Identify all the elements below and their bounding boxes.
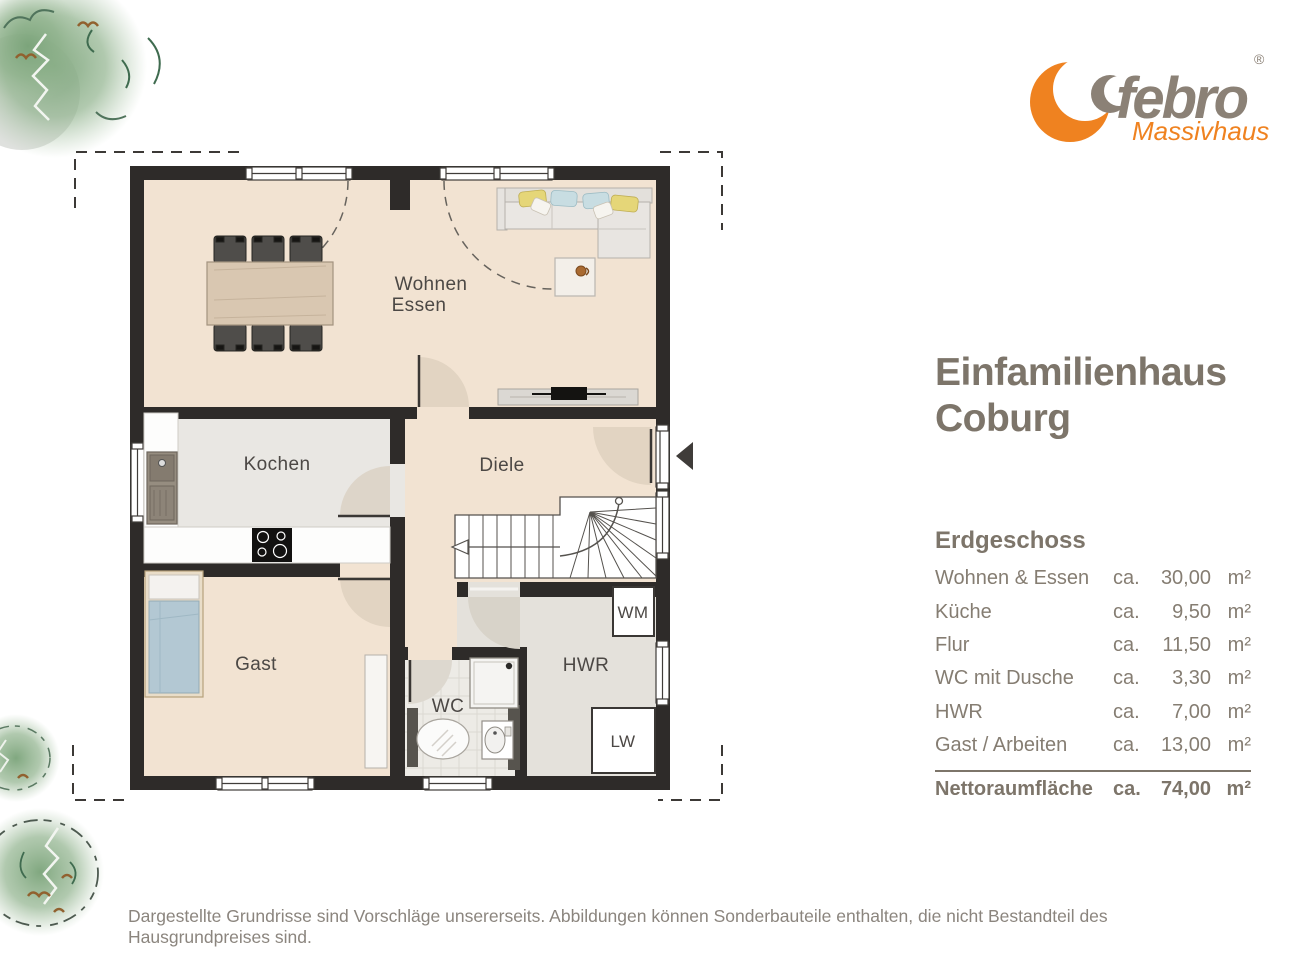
area-ca: ca. — [1113, 567, 1151, 590]
area-row: Kücheca.9,50m² — [935, 601, 1251, 634]
title-line-2: Coburg — [935, 397, 1071, 440]
label-essen: Essen — [392, 295, 447, 316]
area-label: Wohnen & Essen — [935, 567, 1113, 590]
tv-lowboard — [498, 387, 638, 405]
gast-wardrobe — [365, 655, 387, 768]
area-value: 7,00 — [1151, 701, 1211, 724]
area-label: HWR — [935, 701, 1113, 724]
area-value: 11,50 — [1151, 634, 1211, 657]
window-terrace-right — [440, 167, 554, 180]
info-panel: Einfamilienhaus Coburg Erdgeschoss Wohne… — [935, 350, 1251, 801]
wall-stub — [390, 180, 410, 210]
faucet-icon — [159, 460, 166, 467]
washbasin — [482, 721, 513, 759]
label-wm: WM — [617, 603, 648, 622]
area-unit: m² — [1211, 601, 1251, 624]
area-total-row: Nettoraumflächeca.74,00m² — [935, 770, 1251, 801]
area-unit: m² — [1211, 567, 1251, 590]
tree-top-left — [0, 0, 160, 158]
wc-partition-left — [407, 708, 418, 767]
stair-newel — [616, 498, 623, 505]
title-line-1: Einfamilienhaus — [935, 351, 1227, 394]
area-ca: ca. — [1113, 667, 1151, 690]
area-table: Wohnen & Essenca.30,00m² Kücheca.9,50m² … — [935, 567, 1251, 800]
kitchen-sink-unit — [147, 452, 177, 524]
area-unit: m² — [1211, 701, 1251, 724]
area-unit: m² — [1211, 634, 1251, 657]
area-label: Küche — [935, 601, 1113, 624]
label-gast: Gast — [235, 654, 277, 675]
bed-pillow — [149, 575, 199, 599]
area-ca: ca. — [1113, 701, 1151, 724]
window-hwr — [656, 641, 669, 705]
area-row: HWRca.7,00m² — [935, 701, 1251, 734]
diele-corridor-floor — [405, 419, 457, 647]
page: Wohnen Essen Kochen Diele Gast WC HWR WM… — [0, 0, 1296, 972]
label-diele: Diele — [479, 455, 524, 476]
window-wc — [423, 777, 492, 790]
bush-bottom-left-small — [0, 714, 60, 802]
logo-subtitle: Massivhaus — [1132, 116, 1269, 146]
area-value: 30,00 — [1151, 567, 1211, 590]
area-value: 13,00 — [1151, 734, 1211, 757]
area-ca: ca. — [1113, 601, 1151, 624]
area-value: 3,30 — [1151, 667, 1211, 690]
cup-icon — [576, 266, 586, 276]
bathtub-oval — [417, 719, 469, 759]
area-label: Flur — [935, 634, 1113, 657]
window-terrace-left — [246, 167, 352, 180]
window-gast — [216, 777, 314, 790]
side-table — [555, 258, 595, 296]
shower — [470, 658, 518, 708]
label-kochen: Kochen — [244, 454, 311, 475]
area-label: WC mit Dusche — [935, 667, 1113, 690]
area-ca: ca. — [1113, 634, 1151, 657]
area-value: 9,50 — [1151, 601, 1211, 624]
page-title: Einfamilienhaus Coburg — [935, 350, 1251, 441]
cooktop — [252, 528, 292, 562]
window-stairs — [656, 491, 669, 559]
label-wc: WC — [432, 696, 464, 717]
logo-registered-mark: ® — [1254, 51, 1265, 67]
corner-mark-bottom-left — [73, 745, 128, 800]
floor-heading: Erdgeschoss — [935, 527, 1251, 555]
bed — [145, 571, 203, 697]
disclaimer-text: Dargestellte Grundrisse sind Vorschläge … — [128, 906, 1252, 948]
area-row: Wohnen & Essenca.30,00m² — [935, 567, 1251, 600]
area-total-label: Nettoraumfläche — [935, 778, 1113, 801]
entrance-door — [656, 425, 669, 489]
bush-bottom-left-large — [0, 808, 104, 936]
label-lw: LW — [610, 732, 635, 751]
entrance-arrow-icon — [676, 442, 693, 470]
area-total-unit: m² — [1211, 778, 1251, 801]
label-wohnen: Wohnen — [395, 274, 468, 295]
area-row: Gast / Arbeitenca.13,00m² — [935, 734, 1251, 767]
area-label: Gast / Arbeiten — [935, 734, 1113, 757]
window-kitchen — [131, 443, 144, 522]
area-row: Flurca.11,50m² — [935, 634, 1251, 667]
dining-set — [207, 236, 333, 351]
area-total-value: 74,00 — [1151, 778, 1211, 801]
area-row: WC mit Duscheca.3,30m² — [935, 667, 1251, 700]
brand-logo: febro ® Massivhaus — [1030, 38, 1270, 146]
area-unit: m² — [1211, 667, 1251, 690]
shower-drain — [506, 663, 512, 669]
area-unit: m² — [1211, 734, 1251, 757]
label-hwr: HWR — [563, 655, 610, 676]
area-total-ca: ca. — [1113, 778, 1151, 801]
area-ca: ca. — [1113, 734, 1151, 757]
